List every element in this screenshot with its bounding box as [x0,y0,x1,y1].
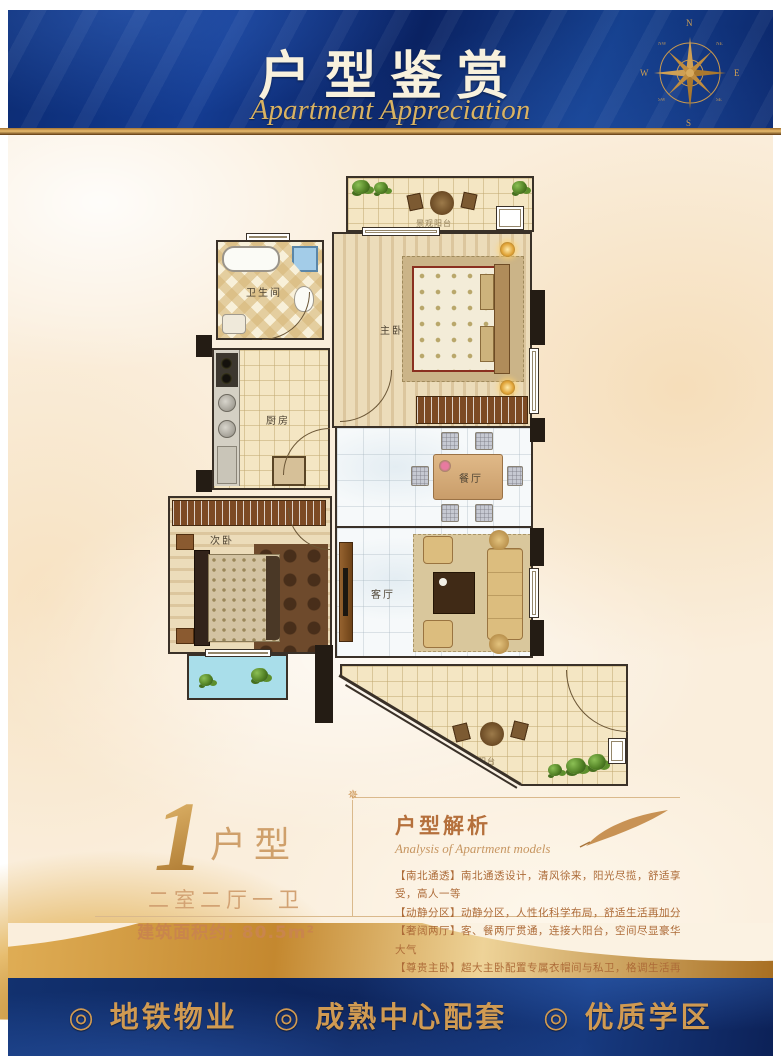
plant [374,182,388,194]
kitchen-sink [218,420,236,438]
balcony-window [496,206,524,230]
room-living: 客厅 [335,528,533,658]
nightstand [176,628,194,644]
plant [251,668,268,682]
analysis-point: 【南北通透】南北通透设计，清风徐来，阳光尽揽，舒适享受，高人一等 [395,867,681,904]
compass-rose-icon: N S E W NW NE SW SE [640,18,740,128]
unit-type-label: 户型 [210,816,298,882]
balcony-chair [406,193,423,212]
second-bed-blanket [266,556,280,640]
dining-chair [441,504,459,522]
balcony-table [480,722,504,746]
dining-chair [411,466,429,486]
plant [588,754,606,770]
compass-w-label: W [640,68,649,78]
plant [566,758,586,774]
window [529,348,539,414]
dining-chair [475,504,493,522]
plant [512,181,527,194]
unit-number: 1 [154,792,204,882]
stove-burner [221,358,232,369]
master-pillow [480,274,494,310]
kitchen-sink [218,394,236,412]
side-table [489,634,509,654]
compass-e-label: E [734,68,740,78]
nightstand [176,534,194,550]
room-label-dining: 餐厅 [459,470,483,485]
divider-top-line [352,797,680,798]
wall-pillar [315,645,333,723]
footer-banner: ◎ 地铁物业 ◎ 成熟中心配套 ◎ 优质学区 [8,978,773,1056]
compass-nw-label: NW [658,42,666,47]
master-pillow [480,326,494,362]
room-view-balcony: 景观阳台 [346,176,534,232]
room-label-kitchen: 厨房 [266,412,290,427]
bathroom-sink [222,314,246,334]
wall-segment [196,335,212,357]
room-label-second-bedroom: 次卧 [210,532,234,547]
compass-sw-label: SW [658,98,666,103]
bronze-divider-bar [0,128,781,135]
nightstand-lamp [500,242,515,257]
armchair [423,536,453,564]
footer-selling-points: ◎ 地铁物业 ◎ 成熟中心配套 ◎ 优质学区 [8,994,773,1036]
poster: 户型鉴赏 Apartment Appreciation N S E W NW N… [0,0,781,1064]
analysis-point: 【奢阔两厅】客、餐两厅贯通，连接大阳台，空间尽显豪华大气 [395,922,681,959]
window [205,649,271,657]
room-label-master-bedroom: 主卧 [380,322,404,337]
entry-door-frame [608,738,626,764]
footer-item-metro: ◎ 地铁物业 [68,994,237,1036]
balcony-chair [452,722,471,742]
plant [548,764,562,776]
sofa [487,548,523,640]
nightstand-lamp [500,380,515,395]
compass-se-label: SE [716,98,722,103]
dining-chair [507,466,523,486]
coffee-cup [439,578,447,586]
wall-segment [530,418,545,442]
balcony-chair [510,720,529,740]
compass-n-label: N [686,18,693,28]
compass-ne-label: NE [716,42,723,47]
shower [292,246,318,272]
plant [199,674,213,686]
footer-item-school: ◎ 优质学区 [543,994,712,1036]
floor-plan: 景观阳台 主卧 卫生间 [150,170,650,798]
balcony-table [430,191,454,215]
unit-layout: 二室二厅一卫 [95,884,357,914]
table-flowers [439,460,451,472]
wall-segment [196,470,212,492]
compass-s-label: S [686,118,691,128]
room-label-living: 客厅 [371,586,395,601]
wall-segment [530,620,544,656]
balcony-chair [460,192,477,211]
room-dining: 餐厅 [335,428,533,528]
unit-area: 建筑面积约: 80.5m² [95,918,357,943]
analysis-points: 【南北通透】南北通透设计，清风徐来，阳光尽揽，舒适享受，高人一等 【动静分区】动… [395,867,681,996]
quill-icon [560,808,670,848]
analysis-point: 【动静分区】动静分区，人性化科学布局，舒适生活再加分 [395,904,681,922]
tv [343,568,348,616]
header-banner: 户型鉴赏 Apartment Appreciation N S E W NW N… [8,10,773,128]
unit-summary: 1 户型 二室二厅一卫 建筑面积约: 80.5m² [95,792,357,922]
dining-chair [475,432,493,450]
plant [352,180,370,194]
wall-segment [530,290,545,345]
bathtub [222,246,280,272]
footer-item-center: ◎ 成熟中心配套 [274,994,507,1036]
master-bed-headboard [494,264,510,374]
wall-segment [530,528,544,566]
divider-ornament: ✵ [344,788,362,803]
window [362,227,440,236]
window [529,568,539,618]
armchair [423,620,453,648]
window [246,233,290,241]
master-wardrobe [416,396,528,424]
stove-burner [221,373,232,384]
side-table [489,530,509,550]
dining-chair [441,432,459,450]
room-small-balcony [187,654,288,700]
kitchen-cabinet [217,446,237,484]
analysis-section: 户型解析 Analysis of Apartment models 【南北通透】… [395,810,681,996]
